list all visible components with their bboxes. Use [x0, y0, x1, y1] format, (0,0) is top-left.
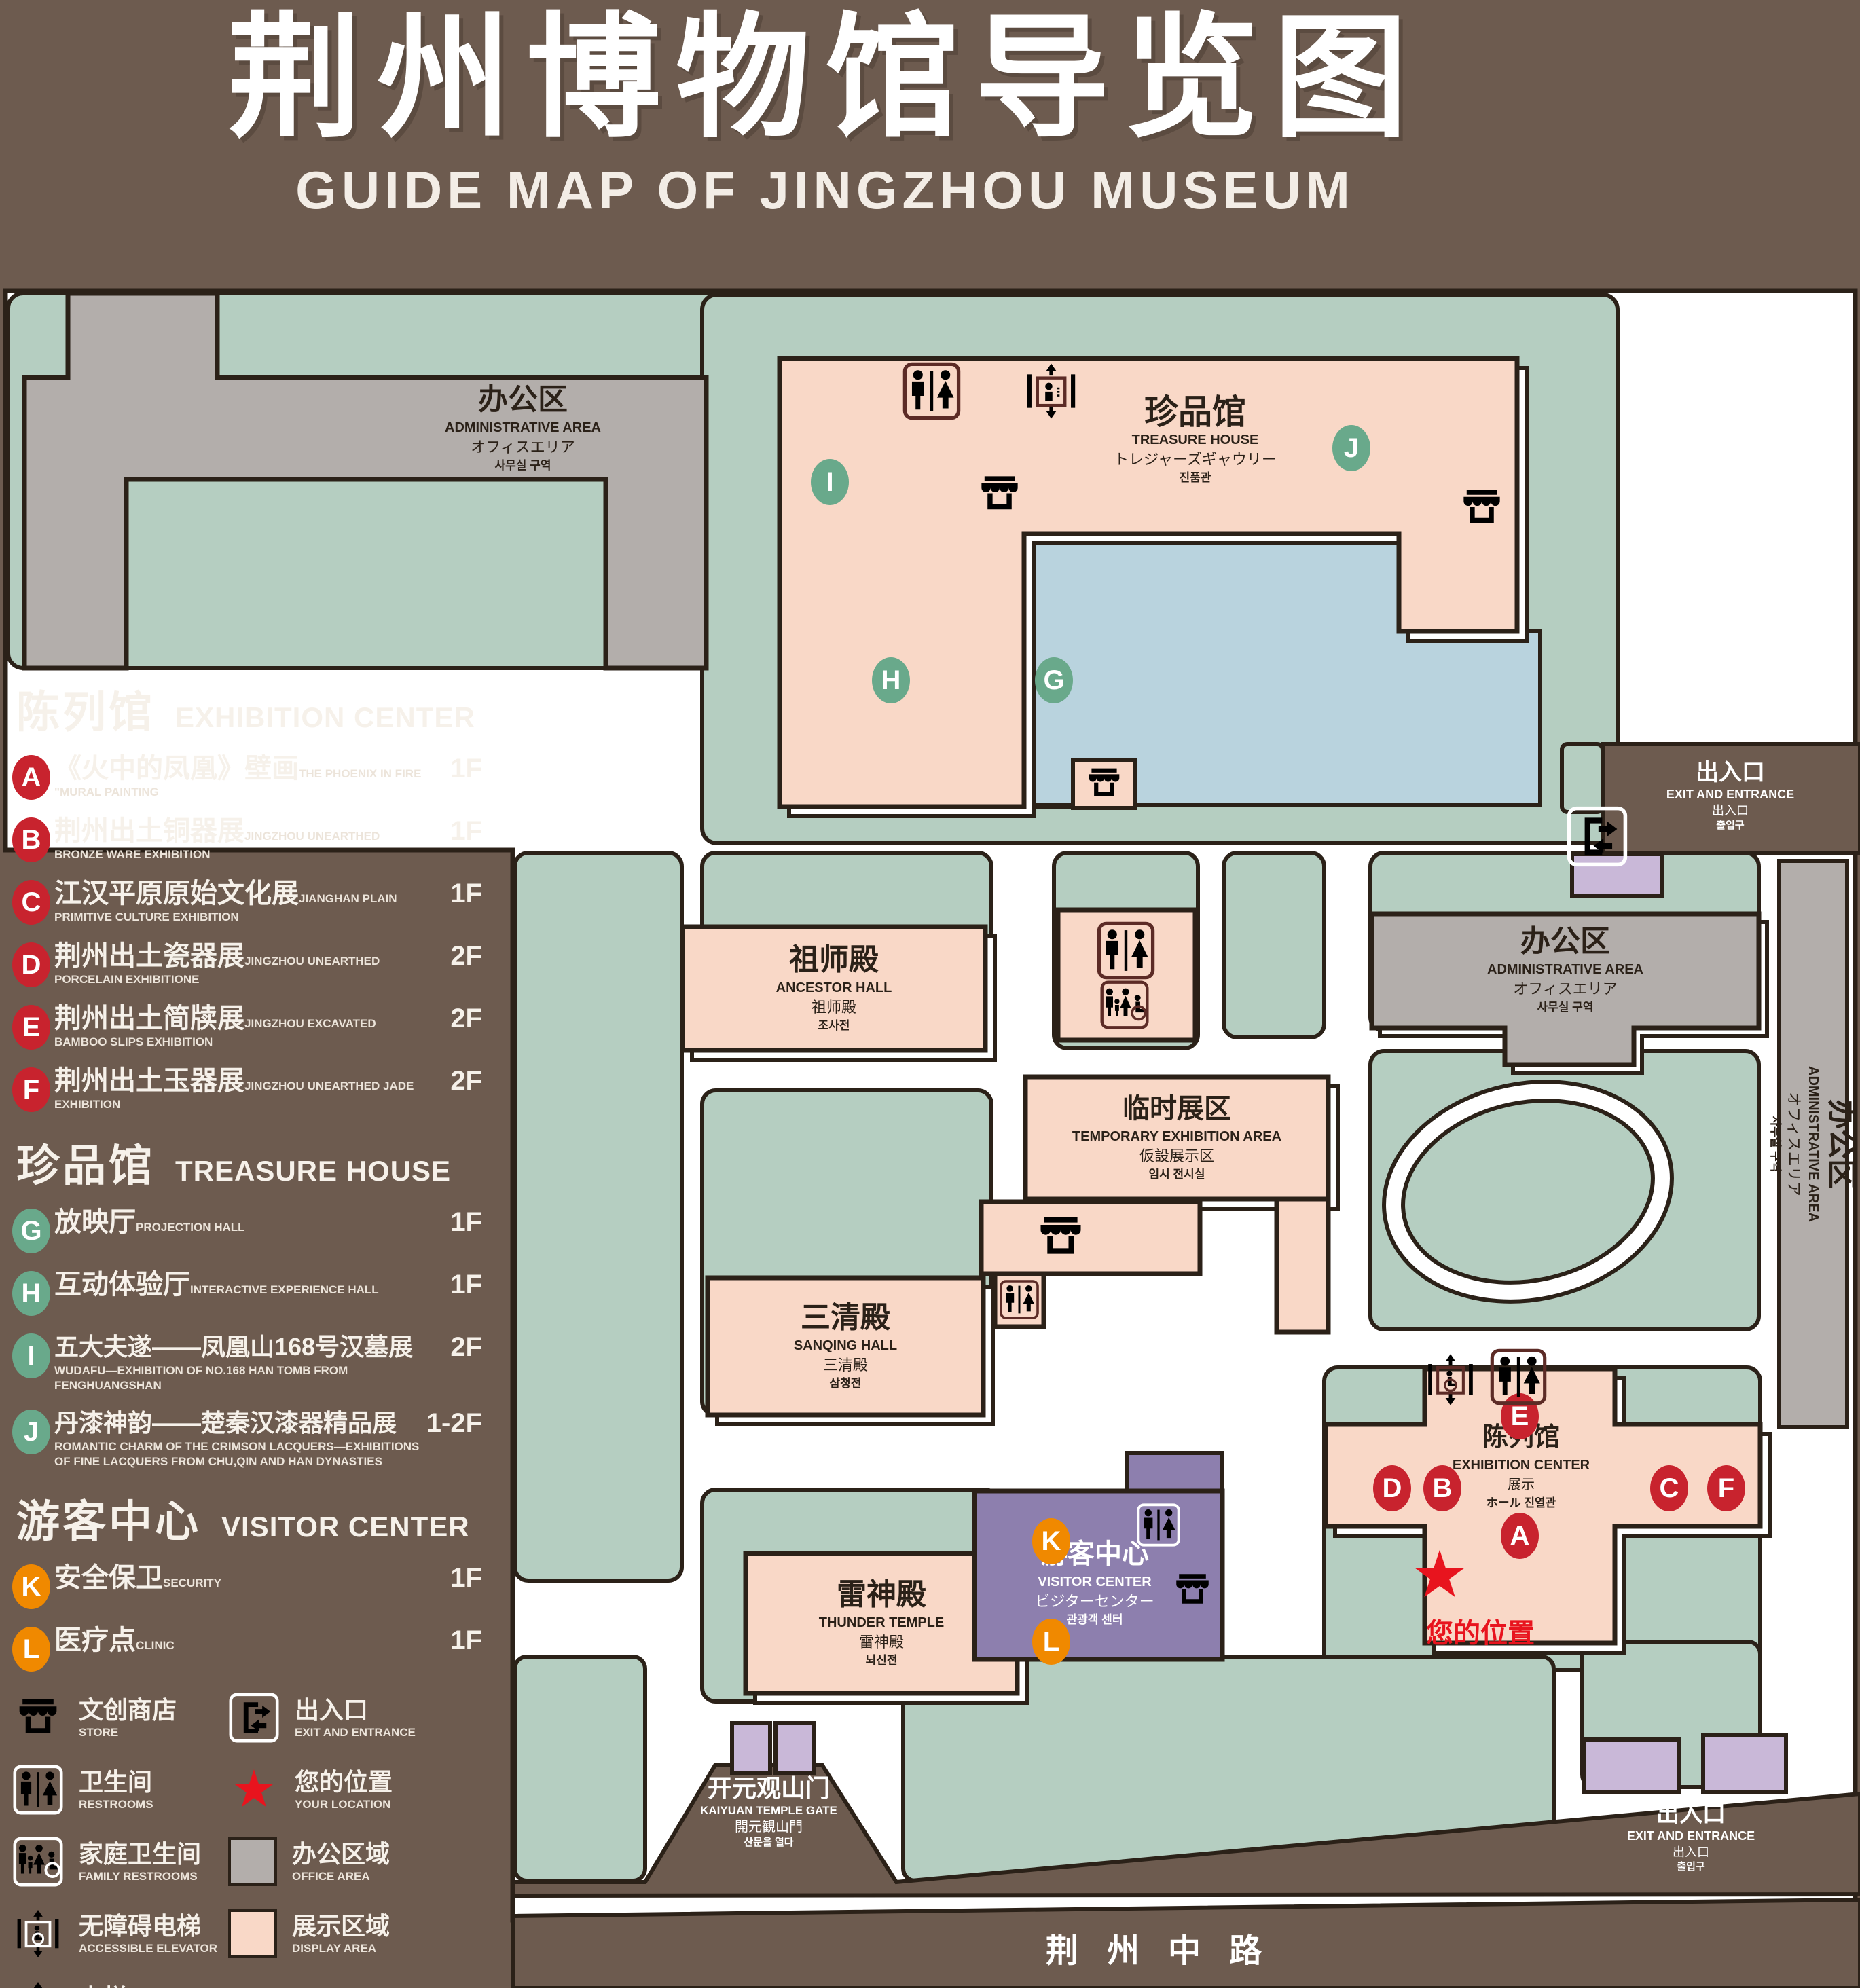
your-location-star-icon: ★ [228, 1764, 280, 1816]
your-location-label: 您的位置 [1426, 1611, 1535, 1651]
label-exit-south: 出入口 EXIT AND ENTRANCE 出入口 출입구 [1627, 1801, 1755, 1874]
legend-item-A: A 《火中的凤凰》壁画THE PHOENIX IN FIRE "MURAL PA… [12, 752, 482, 801]
legend-item-E: E 荆州出土简牍展JINGZHOU EXCAVATED BAMBOO SLIPS… [12, 1002, 482, 1051]
restrooms-icon [12, 1764, 64, 1816]
elevator-icon [12, 1980, 64, 1988]
legend-symbol-display-area: 展示区域DISPLAY AREA [228, 1908, 390, 1959]
legend-section-treasure-house: 珍品馆 TREASURE HOUSE [16, 1131, 482, 1194]
your-location-star-icon: ★ [1410, 1543, 1469, 1608]
label-admin-northwest: 办公区 ADMINISTRATIVE AREA オフィスエリア 사무실 구역 [445, 382, 601, 474]
display-area-swatch [228, 1909, 277, 1958]
elevator-icon [1021, 361, 1081, 421]
legend-symbol-exit: 出入口EXIT AND ENTRANCE [228, 1692, 416, 1744]
legend-symbol-elevator: 电梯Elevator [12, 1980, 228, 1988]
exit-icon [1566, 805, 1628, 868]
legend-item-H: H 互动体验厅INTERACTIVE EXPERIENCE HALL 1F [12, 1268, 482, 1317]
label-exit-east: 出入口 EXIT AND ENTRANCE 出入口 출입구 [1666, 759, 1794, 832]
legend-item-G: G 放映厅PROJECTION HALL 1F [12, 1206, 482, 1255]
restrooms-icon [1096, 921, 1156, 980]
map-marker-A: A [1501, 1513, 1539, 1559]
restrooms-icon [902, 361, 962, 421]
restrooms-icon [1136, 1503, 1181, 1547]
map-marker-L: L [1032, 1619, 1070, 1665]
label-ancestor-hall: 祖师殿 ANCESTOR HALL 祖师殿 조사전 [776, 942, 892, 1034]
office-area-swatch [228, 1837, 277, 1886]
legend: 陈列馆 EXHIBITION CENTER A 《火中的凤凰》壁画THE PHO… [12, 660, 482, 1988]
store-icon [1033, 1209, 1089, 1265]
label-admin-east-strip: 办公区 ADMINISTRATIVE AREA オフィスエリア 사무실 구역 [1767, 1066, 1859, 1222]
store-icon [974, 469, 1025, 519]
map-marker-I: I [811, 459, 849, 505]
legend-item-I: I 五大夫遂——凤凰山168号汉墓展WUDAFU—EXHIBITION OF N… [12, 1331, 482, 1393]
map-marker-H: H [872, 657, 910, 703]
restrooms-icon [1489, 1348, 1548, 1406]
label-admin-middle: 办公区 ADMINISTRATIVE AREA オフィスエリア 사무실 구역 [1487, 923, 1643, 1016]
store-icon [1457, 483, 1507, 533]
exit-icon [228, 1692, 280, 1744]
legend-section-visitor-center: 游客中心 VISITOR CENTER [16, 1487, 482, 1549]
store-icon [12, 1692, 64, 1744]
legend-item-F: F 荆州出土玉器展JINGZHOU UNEARTHED JADE EXHIBIT… [12, 1065, 482, 1113]
guide-map-poster: 荆州博物馆导览图 GUIDE MAP OF JINGZHOU MUSEUM [0, 0, 1860, 1988]
legend-section-exhibition-center: 陈列馆 EXHIBITION CENTER [16, 678, 482, 740]
map-marker-F: F [1707, 1465, 1745, 1511]
road-name: 荆州中路 [1046, 1923, 1290, 1971]
map-marker-K: K [1032, 1518, 1070, 1564]
accessible-elevator-icon [1423, 1352, 1478, 1407]
family-restrooms-icon [12, 1836, 64, 1888]
accessible-elevator-icon [12, 1908, 64, 1959]
legend-symbol-accessible-elevator: 无障碍电梯ACCESSIBLE ELEVATOR [12, 1908, 228, 1959]
legend-symbol-family-restrooms: 家庭卫生间FAMILY RESTROOMS [12, 1836, 228, 1888]
map-marker-C: C [1650, 1465, 1688, 1511]
family-restrooms-icon [1099, 980, 1150, 1030]
label-thunder-temple: 雷神殿 THUNDER TEMPLE 雷神殿 뇌신전 [819, 1577, 944, 1669]
map-marker-G: G [1035, 657, 1073, 703]
legend-symbol-restrooms: 卫生间RESTROOMS [12, 1764, 228, 1816]
legend-symbol-store: 文创商店STORE [12, 1692, 228, 1744]
label-treasure-house: 珍品馆 TREASURE HOUSE トレジャーズギャウリー 진품관 [1114, 394, 1277, 486]
map-marker-B: B [1423, 1465, 1461, 1511]
legend-symbol-your-location: ★ 您的位置YOUR LOCATION [228, 1764, 393, 1816]
restrooms-icon [999, 1279, 1040, 1320]
legend-item-C: C 江汉平原原始文化展JIANGHAN PLAIN PRIMITIVE CULT… [12, 877, 482, 926]
map-marker-D: D [1373, 1465, 1411, 1511]
legend-item-J: J 丹漆神韵——楚秦汉漆器精品展ROMANTIC CHARM OF THE CR… [12, 1407, 482, 1469]
legend-symbol-office-area: 办公区域OFFICE AREA [228, 1836, 390, 1888]
legend-item-K: K 安全保卫SECURITY 1F [12, 1562, 482, 1610]
map-marker-J: J [1332, 425, 1370, 471]
label-sanqing-hall: 三清殿 SANQING HALL 三清殿 삼청전 [794, 1300, 897, 1392]
legend-item-D: D 荆州出土瓷器展JINGZHOU UNEARTHED PORCELAIN EX… [12, 940, 482, 989]
store-icon [1170, 1568, 1215, 1613]
legend-item-B: B 荆州出土铜器展JINGZHOU UNEARTHED BRONZE WARE … [12, 815, 482, 864]
store-icon [1083, 762, 1125, 805]
label-kaiyuan-gate: 开元观山门 KAIYUAN TEMPLE GATE 開元観山門 산문을 열다 [700, 1773, 837, 1849]
label-temporary-exhibition: 临时展区 TEMPORARY EXHIBITION AREA 仮設展示区 임시 … [1072, 1090, 1281, 1183]
legend-symbols: 文创商店STORE 出入口EXIT AND ENTRANCE 卫生间RESTRO… [12, 1692, 482, 1988]
legend-item-L: L 医疗点CLINIC 1F [12, 1624, 482, 1673]
